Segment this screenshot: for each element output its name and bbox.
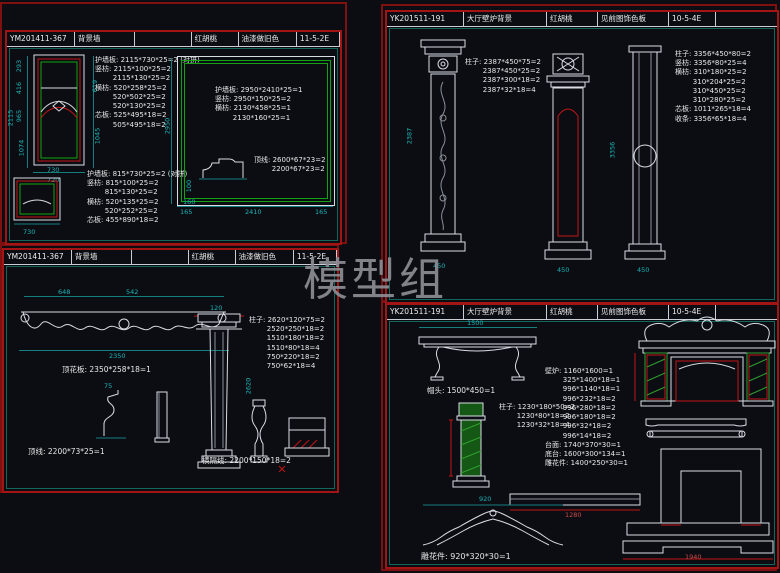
drawing-name: 背景墙 [75, 32, 135, 46]
dim-label: 450 [637, 266, 649, 274]
dim-label: 730 [23, 228, 35, 236]
dim-line [93, 56, 94, 168]
sheet-code: 11-5-2E [297, 32, 340, 46]
base-leg-frame-drawing [655, 443, 767, 527]
titlebar: YM201411-367 背景墙 红胡桃 油漆做旧色 11-5-2E [4, 250, 337, 265]
dim-label: 920 [479, 495, 491, 503]
empty-cell [135, 32, 191, 46]
crown-molding-profile [199, 154, 247, 180]
carved-column-drawing [419, 38, 467, 256]
titlebar: YM201411-367 背景墙 红胡桃 油漆做旧色 11-5-2E [7, 32, 340, 47]
dim-label: 542 [126, 288, 138, 296]
column-side-drawing [619, 46, 671, 262]
door-panel-drawing [33, 54, 85, 166]
dim-line [24, 296, 224, 297]
dim-line [177, 206, 333, 207]
crown-molding-profile [96, 390, 136, 440]
carved-arch-label: 雕花件: 920*320*30=1 [421, 551, 511, 562]
dim-label: 75 [104, 382, 112, 390]
cad-canvas: { "watermark": "模型组", "colors": { "backg… [0, 0, 780, 573]
column-front-drawing [537, 52, 599, 260]
divider-strip-profile [150, 390, 172, 444]
pillar-elevation-drawing [194, 312, 244, 470]
drawing-number: YK201511-191 [387, 12, 464, 26]
parts-list-pillar-2620: 柱子: 2620*120*75=2 2520*250*18=2 1510*180… [249, 316, 325, 371]
dim-label: 120 [210, 304, 222, 312]
dim-label: 1045 [93, 128, 101, 145]
dim-line [419, 327, 537, 328]
sheet-code: 10-5-4E [669, 12, 716, 26]
dim-label: 1500 [467, 319, 484, 327]
crown-molding-label: 顶线: 2200*73*25=1 [28, 446, 105, 457]
parts-list-wainscot-815: 护墙板: 815*730*25=2 (对拼)竖枋: 815*100*25=2 8… [87, 170, 187, 225]
drawing-number: YM201411-367 [7, 32, 75, 46]
dim-label: 965 [15, 110, 23, 122]
dim-label: 1074 [17, 140, 25, 157]
dim-label: 416 [15, 82, 23, 94]
drawing-name: 背景墙 [72, 250, 132, 264]
empty-cell [132, 250, 188, 264]
drawing-number: YK201511-191 [387, 305, 464, 319]
parts-list-fireplace: 壁炉: 1160*1600=1 325*1400*18=1 996*1140*1… [545, 367, 628, 469]
dim-label: 1940 [685, 553, 702, 561]
dim-label: 293 [15, 60, 23, 72]
titlebar-filler [716, 12, 777, 26]
dim-label: 450 [557, 266, 569, 274]
finish: 油漆做旧色 [239, 32, 297, 46]
bench-cap-drawing [415, 329, 540, 381]
panel-fireplace-columns: YK201511-191 大厅壁炉背景 红胡桃 见前图饰色板 10-5-4E 2… [385, 10, 779, 304]
drawing-name: 大厅壁炉背景 [464, 12, 547, 26]
dim-label: 2620 [244, 378, 252, 395]
material: 红胡桃 [189, 250, 236, 264]
dim-label: 2350 [109, 352, 126, 360]
titlebar: YK201511-191 大厅壁炉背景 红胡桃 见前图饰色板 10-5-4E [387, 12, 777, 27]
panel-wall-elevation-1: YM201411-367 背景墙 红胡桃 油漆做旧色 11-5-2E 293 4… [5, 30, 342, 245]
parts-list-column-3356: 柱子: 3356*450*80=2竖枋: 3356*80*25=4横枋: 310… [675, 50, 751, 124]
dim-label: 3356 [608, 142, 616, 159]
green-pillar-drawing [449, 401, 493, 493]
dim-label: 450 [433, 262, 445, 270]
bench-cap-label: 帽头: 1500*450=1 [427, 385, 495, 396]
parts-list-column-2387: 柱子: 2387*450*75=2 2387*450*25=2 2387*300… [465, 58, 541, 95]
finish: 油漆做旧色 [236, 250, 294, 264]
drawing-number: YM201411-367 [4, 250, 72, 264]
small-panel-drawing [13, 172, 67, 228]
dim-label: 2115 [6, 110, 14, 127]
sheet-code: 11-5-2E [294, 250, 337, 264]
shelf-profiles-drawing [642, 413, 750, 441]
panel-wall-elevation-2: YM201411-367 背景墙 红胡桃 油漆做旧色 11-5-2E 648 5… [2, 248, 339, 493]
dim-line [27, 56, 28, 168]
dim-label: 2387 [405, 128, 413, 145]
dim-label: 648 [58, 288, 70, 296]
parts-list-crown-molding: 顶线: 2600*67*23=2 2200*67*23=2 [254, 156, 326, 174]
material: 红胡桃 [547, 305, 598, 319]
fireplace-elevation-drawing [635, 311, 779, 409]
finish: 见前图饰色板 [598, 12, 669, 26]
dim-label: 2410 [245, 208, 262, 216]
material: 红胡桃 [547, 12, 598, 26]
drawing-name: 大厅壁炉背景 [464, 305, 547, 319]
dim-label: 1280 [565, 511, 582, 519]
dim-label: 165 [315, 208, 327, 216]
carved-arch-drawing [419, 503, 567, 549]
carved-board-label: 顶花板: 2350*258*18=1 [62, 364, 151, 375]
parts-list-wainscot-2950: 护墙板: 2950*2410*25=1竖枋: 2950*150*25=2横枋: … [215, 86, 302, 123]
material: 红胡桃 [192, 32, 239, 46]
panel-fireplace-assembly: YK201511-191 大厅壁炉背景 红胡桃 见前图饰色板 10-5-4E 1… [385, 303, 779, 569]
small-details-drawing [241, 400, 336, 482]
